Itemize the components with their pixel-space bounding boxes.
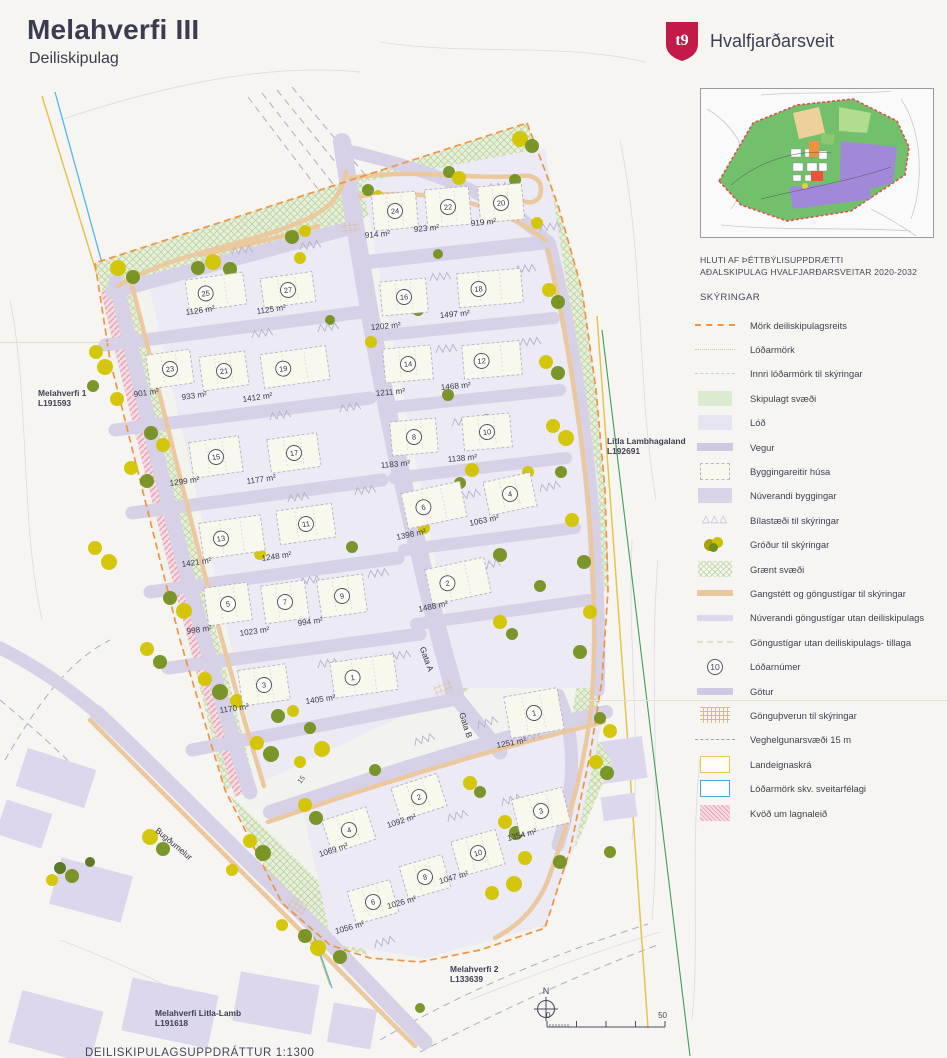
lot-building-envelope: 24	[372, 191, 419, 231]
drawing-title-note: DEILISKIPULAGSUPPDRÁTTUR 1:1300	[85, 1047, 315, 1058]
scan-fold-line	[0, 342, 118, 343]
lot-building-envelope: 17	[267, 433, 321, 474]
plan-sheet: 2422201618141281064225272321191517131157…	[0, 0, 947, 1058]
legend-item-label: Mörk deiliskipulagsreits	[750, 320, 847, 331]
dash-faint-legend-icon	[692, 373, 738, 374]
lot-number: 10	[482, 427, 491, 437]
legend-item-label: Gangstétt og göngustígar til skýringar	[750, 588, 906, 599]
scale-bar: 050	[546, 1011, 668, 1027]
hatch-pink-legend-icon	[692, 805, 738, 821]
bar-vegur-legend-icon	[692, 443, 738, 451]
svg-text:t9: t9	[675, 32, 688, 49]
legend-item-label: Lóðarmörk	[750, 344, 795, 355]
legend-item-label: Innri lóðarmörk til skýringar	[750, 368, 863, 379]
legend-heading: SKÝRINGAR	[700, 292, 942, 303]
fill-lod-legend-icon	[692, 415, 738, 430]
lot-number: 21	[219, 366, 229, 376]
legend-item: Lóðarmörk	[680, 337, 942, 361]
parcel-label: Melahverfi 2L133639	[450, 964, 499, 984]
page-subtitle: Deiliskipulag	[29, 50, 119, 68]
legend-item-label: Lóð	[750, 417, 766, 428]
lot-number: 16	[399, 292, 408, 302]
lot-number: 20	[496, 198, 505, 208]
legend-item: △△△Bílastæði til skýringar	[680, 508, 942, 532]
legend-item: Gróður til skýringar	[680, 533, 942, 557]
legend-panel: HLUTI AF ÞÉTTBÝLISUPPDRÆTTI AÐALSKIPULAG…	[680, 88, 942, 825]
lot-building-envelope: 10	[462, 413, 513, 451]
legend-item-label: Vegur	[750, 442, 775, 453]
rect-blue-legend-icon	[692, 780, 738, 797]
legend-item: Grænt svæði	[680, 557, 942, 581]
lot-number: 12	[477, 356, 486, 366]
legend-item: Kvöð um lagnaleið	[680, 801, 942, 825]
bar-lav-legend-icon	[692, 615, 738, 621]
legend-item: Skipulagt svæði	[680, 386, 942, 410]
bar-gotur-legend-icon	[692, 688, 738, 695]
municipality-brand: t9 Hvalfjarðarsveit	[664, 20, 834, 62]
legend-item: Núverandi göngustígar utan deiliskipulag…	[680, 606, 942, 630]
lot-number: 11	[302, 519, 311, 529]
parcel-label: Melahverfi 1L191593	[38, 388, 87, 408]
lot-number: 23	[165, 364, 175, 374]
legend-item-label: Göngustígar utan deiliskipulags- tillaga	[750, 637, 911, 648]
legend-list: Mörk deiliskipulagsreitsLóðarmörkInnri l…	[680, 313, 942, 825]
dash-veg-legend-icon	[692, 739, 738, 740]
legend-item-label: Bílastæði til skýringar	[750, 515, 839, 526]
hatch-green-legend-icon	[692, 561, 738, 577]
legend-item-label: Byggingareitir húsa	[750, 466, 830, 477]
bldg-legend-icon	[692, 463, 738, 480]
lot-building-envelope: 21	[199, 351, 249, 391]
legend-item-label: Gróður til skýringar	[750, 539, 829, 550]
legend-item: Núverandi byggingar	[680, 484, 942, 508]
legend-item: Göngustígar utan deiliskipulags- tillaga	[680, 630, 942, 654]
svg-text:0: 0	[546, 1011, 551, 1020]
legend-item: Landeignaskrá	[680, 752, 942, 776]
scan-fold-line	[575, 700, 947, 701]
bar-tan-legend-icon	[692, 590, 738, 596]
legend-item-label: Lóðarmörk skv. sveitarfélagi	[750, 783, 866, 794]
lot-number: 24	[390, 206, 399, 216]
dot-faint-legend-icon	[692, 349, 738, 350]
lot-number: 8	[412, 432, 417, 441]
legend-item: Lóðarmörk skv. sveitarfélagi	[680, 776, 942, 800]
legend-item-label: Kvöð um lagnaleið	[750, 808, 827, 819]
legend-item: Veghelgunarsvæði 15 m	[680, 728, 942, 752]
lot-building-envelope: 15	[189, 436, 244, 479]
legend-item: 10Lóðarnúmer	[680, 654, 942, 678]
legend-item-label: Veghelgunarsvæði 15 m	[750, 734, 851, 745]
legend-item-label: Lóðarnúmer	[750, 661, 801, 672]
municipality-shield-logo-icon: t9	[664, 20, 700, 62]
legend-item: Lóð	[680, 411, 942, 435]
legend-item: Vegur	[680, 435, 942, 459]
dash-orange-legend-icon	[692, 324, 738, 326]
lot-building-envelope: 23	[146, 349, 194, 389]
lot-building-envelope: 14	[383, 345, 434, 383]
legend-item-label: Gönguþverun til skýringar	[750, 710, 857, 721]
lot-building-envelope: 5	[204, 582, 253, 626]
page-title: Melahverfi III	[27, 14, 199, 46]
municipality-name: Hvalfjarðarsveit	[710, 31, 834, 52]
inset-caption: HLUTI AF ÞÉTTBÝLISUPPDRÆTTI AÐALSKIPULAG…	[700, 254, 942, 278]
lot-building-envelope: 3	[238, 664, 291, 706]
grid-tan-legend-icon	[692, 707, 738, 723]
lot-building-envelope: 16	[380, 278, 429, 316]
legend-item-label: Landeignaskrá	[750, 759, 812, 770]
fill-green-legend-icon	[692, 391, 738, 406]
overview-inset-map	[700, 88, 934, 238]
fill-nuv-legend-icon	[692, 488, 738, 503]
legend-item: Mörk deiliskipulagsreits	[680, 313, 942, 337]
lot-number: 15	[211, 452, 221, 462]
lot-number: 25	[201, 289, 211, 299]
lot-building-envelope: 18	[457, 268, 524, 307]
tri-legend-icon: △△△	[692, 515, 738, 525]
lot-building-envelope: 7	[261, 580, 310, 624]
svg-text:50: 50	[658, 1011, 667, 1020]
lot-number: 27	[283, 285, 293, 295]
lot-building-envelope: 9	[317, 574, 368, 618]
lot-number: 13	[216, 534, 226, 544]
legend-item: Gönguþverun til skýringar	[680, 703, 942, 727]
trees-legend-icon	[692, 537, 738, 553]
lot-number: 17	[289, 448, 299, 458]
legend-item-label: Núverandi byggingar	[750, 490, 837, 501]
lot-building-envelope: 8	[390, 418, 439, 456]
svg-text:N: N	[543, 986, 550, 996]
legend-item-label: Skipulagt svæði	[750, 393, 816, 404]
lot-number: 19	[278, 364, 288, 374]
lot-number: 18	[474, 284, 483, 294]
legend-item-label: Götur	[750, 686, 773, 697]
lot-building-envelope: 22	[424, 186, 471, 228]
parcel-label: Litla LambhagalandL192691	[607, 436, 686, 456]
legend-item-label: Grænt svæði	[750, 564, 804, 575]
legend-item: Innri lóðarmörk til skýringar	[680, 362, 942, 386]
lot-building-envelope: 12	[462, 341, 523, 380]
legend-item: Byggingareitir húsa	[680, 459, 942, 483]
lot-number: 14	[403, 359, 412, 369]
legend-item-label: Núverandi göngustígar utan deiliskipulag…	[750, 612, 924, 623]
dash-cream-legend-icon	[692, 641, 738, 643]
circle-num-legend-icon: 10	[692, 659, 738, 675]
rect-yellow-legend-icon	[692, 756, 738, 773]
lot-number: 22	[443, 202, 452, 212]
legend-item: Gangstétt og göngustígar til skýringar	[680, 581, 942, 605]
